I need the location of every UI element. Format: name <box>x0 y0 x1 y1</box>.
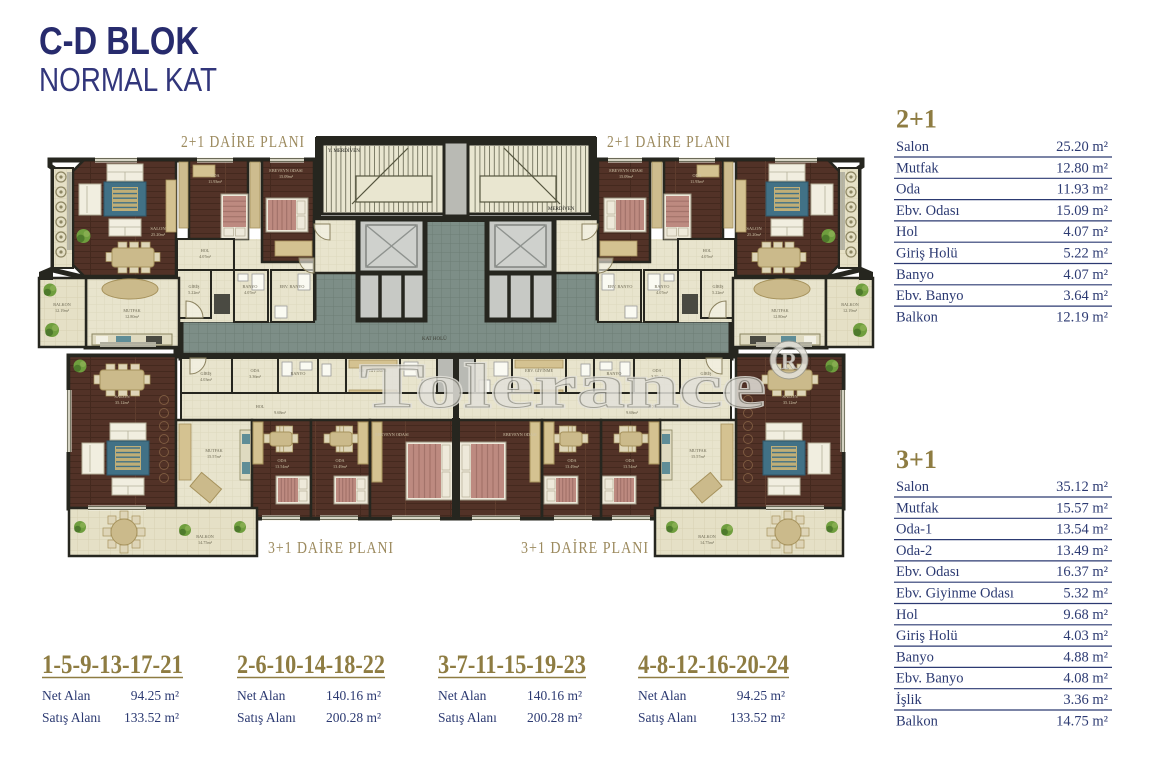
svg-text:BALKON: BALKON <box>196 534 213 539</box>
svg-text:Satış Alanı: Satış Alanı <box>42 710 101 725</box>
svg-text:200.28 m²: 200.28 m² <box>326 710 381 725</box>
svg-text:ODA: ODA <box>692 173 701 178</box>
svg-text:EBEVEYN ODASI: EBEVEYN ODASI <box>609 168 643 173</box>
svg-text:ODA: ODA <box>277 458 286 463</box>
svg-text:133.52 m²: 133.52 m² <box>124 710 179 725</box>
svg-text:2-6-10-14-18-22: 2-6-10-14-18-22 <box>237 650 385 679</box>
svg-text:SALON: SALON <box>114 394 130 399</box>
svg-text:Balkon: Balkon <box>896 309 939 325</box>
svg-text:13.49m²: 13.49m² <box>333 464 348 469</box>
svg-text:SALON: SALON <box>150 226 166 231</box>
svg-text:ODA: ODA <box>250 368 259 373</box>
svg-text:1-5-9-13-17-21: 1-5-9-13-17-21 <box>42 650 183 679</box>
svg-text:2+1 DAİRE PLANI: 2+1 DAİRE PLANI <box>181 132 305 151</box>
svg-text:15.57m²: 15.57m² <box>207 454 222 459</box>
svg-text:13.54m²: 13.54m² <box>623 464 638 469</box>
svg-text:Mutfak: Mutfak <box>896 160 939 176</box>
svg-text:4.07m²: 4.07m² <box>199 254 212 259</box>
svg-text:EBV. BANYO: EBV. BANYO <box>280 284 305 289</box>
svg-text:Banyo: Banyo <box>896 649 934 665</box>
svg-text:15.09m²: 15.09m² <box>279 174 294 179</box>
svg-text:Net Alan: Net Alan <box>638 688 687 703</box>
svg-text:Ebv. Giyinme Odası: Ebv. Giyinme Odası <box>896 586 1014 602</box>
svg-text:C-D BLOK: C-D BLOK <box>39 20 199 63</box>
svg-text:94.25 m²: 94.25 m² <box>737 688 785 703</box>
svg-text:4.88 m²: 4.88 m² <box>1063 649 1108 665</box>
svg-text:MUTFAK: MUTFAK <box>689 448 706 453</box>
svg-text:12.80m²: 12.80m² <box>773 314 788 319</box>
svg-text:BANYO: BANYO <box>655 284 670 289</box>
svg-text:Tolerance: Tolerance <box>360 353 765 421</box>
svg-text:BANYO: BANYO <box>291 371 306 376</box>
svg-text:Banyo: Banyo <box>896 267 934 283</box>
svg-text:12.80 m²: 12.80 m² <box>1056 160 1109 176</box>
svg-text:25.20 m²: 25.20 m² <box>1056 139 1109 155</box>
svg-text:Oda-1: Oda-1 <box>896 522 932 538</box>
svg-text:Salon: Salon <box>896 479 930 495</box>
svg-text:11.93 m²: 11.93 m² <box>1057 182 1109 198</box>
svg-text:35.12m²: 35.12m² <box>783 400 798 405</box>
svg-text:ODA: ODA <box>335 458 344 463</box>
svg-text:Giriş Holü: Giriş Holü <box>896 628 958 644</box>
svg-text:Satış Alanı: Satış Alanı <box>237 710 296 725</box>
svg-text:Ebv. Odası: Ebv. Odası <box>896 564 960 580</box>
svg-text:Ebv. Banyo: Ebv. Banyo <box>896 288 964 304</box>
svg-text:12.80m²: 12.80m² <box>125 314 140 319</box>
svg-text:4.07m²: 4.07m² <box>701 254 714 259</box>
svg-text:Giriş Holü: Giriş Holü <box>896 246 958 262</box>
svg-text:4-8-12-16-20-24: 4-8-12-16-20-24 <box>638 650 789 679</box>
svg-text:EBEVEYN ODASI: EBEVEYN ODASI <box>375 432 409 437</box>
svg-text:BALKON: BALKON <box>53 302 70 307</box>
svg-text:BANYO: BANYO <box>243 284 258 289</box>
svg-text:Net Alan: Net Alan <box>438 688 487 703</box>
svg-text:14.75m²: 14.75m² <box>198 540 213 545</box>
svg-text:2+1: 2+1 <box>896 105 937 134</box>
svg-text:4.07 m²: 4.07 m² <box>1063 224 1108 240</box>
svg-text:EBV. BANYO: EBV. BANYO <box>608 284 633 289</box>
svg-text:GİRİŞ: GİRİŞ <box>189 284 201 289</box>
svg-text:4.08 m²: 4.08 m² <box>1063 671 1108 687</box>
svg-text:4.03m²: 4.03m² <box>200 377 213 382</box>
svg-text:5.32 m²: 5.32 m² <box>1063 586 1108 602</box>
svg-text:KAT HOLÜ: KAT HOLÜ <box>422 336 447 342</box>
svg-text:3.36 m²: 3.36 m² <box>1063 692 1108 708</box>
svg-text:15.09m²: 15.09m² <box>619 174 634 179</box>
svg-text:Hol: Hol <box>896 224 918 240</box>
svg-text:MERDİVEN: MERDİVEN <box>548 206 575 212</box>
svg-text:133.52 m²: 133.52 m² <box>730 710 785 725</box>
svg-text:35.12 m²: 35.12 m² <box>1056 479 1109 495</box>
svg-text:Salon: Salon <box>896 139 930 155</box>
svg-text:HOL: HOL <box>256 404 265 409</box>
svg-text:5.22m²: 5.22m² <box>712 290 725 295</box>
svg-text:Ebv. Banyo: Ebv. Banyo <box>896 671 964 687</box>
svg-text:3+1 DAİRE PLANI: 3+1 DAİRE PLANI <box>268 538 394 557</box>
svg-text:11.93m²: 11.93m² <box>690 179 705 184</box>
svg-text:12.19m²: 12.19m² <box>843 308 858 313</box>
svg-text:EBEVEYN ODASI: EBEVEYN ODASI <box>503 432 537 437</box>
svg-text:4.03 m²: 4.03 m² <box>1063 628 1108 644</box>
svg-text:Y. MERDİVEN: Y. MERDİVEN <box>328 148 360 154</box>
svg-text:Hol: Hol <box>896 607 918 623</box>
svg-text:15.57m²: 15.57m² <box>691 454 706 459</box>
svg-text:Net Alan: Net Alan <box>237 688 286 703</box>
svg-text:GİRİŞ: GİRİŞ <box>201 371 213 376</box>
svg-text:HOL: HOL <box>201 248 210 253</box>
svg-text:Satış Alanı: Satış Alanı <box>438 710 497 725</box>
svg-text:200.28 m²: 200.28 m² <box>527 710 582 725</box>
svg-text:ODA: ODA <box>210 173 219 178</box>
svg-text:BALKON: BALKON <box>698 534 715 539</box>
svg-text:15.57 m²: 15.57 m² <box>1056 500 1109 516</box>
svg-text:HOL: HOL <box>703 248 712 253</box>
svg-text:3+1: 3+1 <box>896 445 937 474</box>
svg-text:2+1 DAİRE PLANI: 2+1 DAİRE PLANI <box>607 132 731 151</box>
svg-text:BALKON: BALKON <box>841 302 858 307</box>
svg-text:12.19 m²: 12.19 m² <box>1056 309 1109 325</box>
svg-text:4.07m²: 4.07m² <box>656 290 669 295</box>
svg-text:Net Alan: Net Alan <box>42 688 91 703</box>
svg-text:94.25 m²: 94.25 m² <box>131 688 179 703</box>
svg-text:EBEVEYN ODASI: EBEVEYN ODASI <box>269 168 303 173</box>
svg-text:16.37 m²: 16.37 m² <box>1056 564 1109 580</box>
svg-text:14.75 m²: 14.75 m² <box>1056 713 1109 729</box>
svg-text:ODA: ODA <box>625 458 634 463</box>
svg-text:ODA: ODA <box>567 458 576 463</box>
svg-text:Ebv. Odası: Ebv. Odası <box>896 203 960 219</box>
svg-text:5.22 m²: 5.22 m² <box>1063 246 1108 262</box>
svg-text:SALON: SALON <box>746 226 762 231</box>
svg-text:13.49m²: 13.49m² <box>565 464 580 469</box>
svg-text:MUTFAK: MUTFAK <box>123 308 140 313</box>
svg-text:R: R <box>781 349 798 374</box>
svg-text:25.20m²: 25.20m² <box>747 232 762 237</box>
svg-text:3-7-11-15-19-23: 3-7-11-15-19-23 <box>438 650 586 679</box>
svg-text:35.12m²: 35.12m² <box>115 400 130 405</box>
svg-text:9.68m²: 9.68m² <box>274 410 287 415</box>
svg-text:25.20m²: 25.20m² <box>151 232 166 237</box>
svg-text:13.49 m²: 13.49 m² <box>1056 543 1109 559</box>
svg-text:3.36m²: 3.36m² <box>249 374 262 379</box>
svg-text:MUTFAK: MUTFAK <box>205 448 222 453</box>
svg-text:3+1 DAİRE PLANI: 3+1 DAİRE PLANI <box>521 538 649 557</box>
svg-text:11.93m²: 11.93m² <box>208 179 223 184</box>
svg-text:3.64 m²: 3.64 m² <box>1063 288 1108 304</box>
svg-text:Oda-2: Oda-2 <box>896 543 932 559</box>
svg-text:140.16 m²: 140.16 m² <box>527 688 582 703</box>
svg-text:SALON: SALON <box>782 394 798 399</box>
svg-text:13.54m²: 13.54m² <box>275 464 290 469</box>
svg-text:13.54 m²: 13.54 m² <box>1056 522 1109 538</box>
svg-text:5.22m²: 5.22m² <box>188 290 201 295</box>
svg-text:15.09 m²: 15.09 m² <box>1056 203 1109 219</box>
svg-text:Oda: Oda <box>896 182 921 198</box>
svg-text:4.07m²: 4.07m² <box>244 290 257 295</box>
svg-text:NORMAL KAT: NORMAL KAT <box>39 61 217 98</box>
svg-text:Mutfak: Mutfak <box>896 500 939 516</box>
svg-text:4.07 m²: 4.07 m² <box>1063 267 1108 283</box>
svg-text:İşlik: İşlik <box>896 692 923 708</box>
svg-text:Satış Alanı: Satış Alanı <box>638 710 697 725</box>
svg-text:9.68 m²: 9.68 m² <box>1063 607 1108 623</box>
svg-text:14.75m²: 14.75m² <box>700 540 715 545</box>
svg-text:GİRİŞ: GİRİŞ <box>713 284 725 289</box>
svg-text:140.16 m²: 140.16 m² <box>326 688 381 703</box>
svg-text:12.19m²: 12.19m² <box>55 308 70 313</box>
svg-text:Balkon: Balkon <box>896 713 939 729</box>
svg-text:MUTFAK: MUTFAK <box>771 308 788 313</box>
